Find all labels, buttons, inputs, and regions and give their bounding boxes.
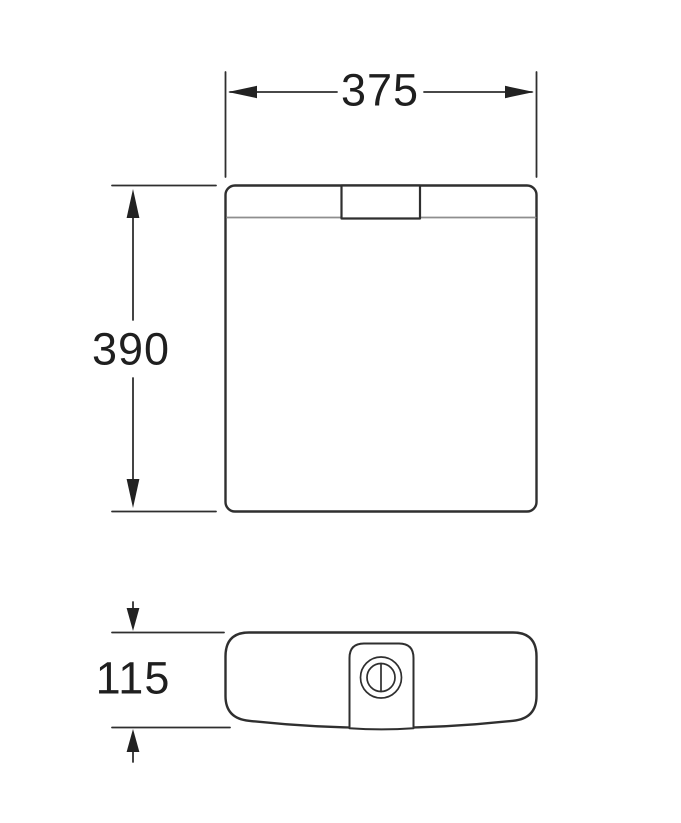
depth-dimension-label: 115 xyxy=(96,656,171,701)
height-arrow-down-icon xyxy=(127,479,140,508)
height-arrow-up-icon xyxy=(127,189,140,218)
cistern-front-view xyxy=(226,186,537,512)
technical-drawing-canvas: 375 390 115 xyxy=(0,0,681,823)
width-arrow-right-icon xyxy=(505,86,534,98)
height-dimension-label: 390 xyxy=(92,327,170,372)
front-view-body-outline xyxy=(226,186,537,512)
cistern-top-view xyxy=(226,633,537,730)
width-arrow-left-icon xyxy=(228,86,257,98)
width-dimension-label: 375 xyxy=(341,68,419,113)
depth-arrow-down-icon xyxy=(127,608,140,631)
depth-arrow-up-icon xyxy=(127,729,140,752)
front-view-flush-button xyxy=(342,186,421,219)
